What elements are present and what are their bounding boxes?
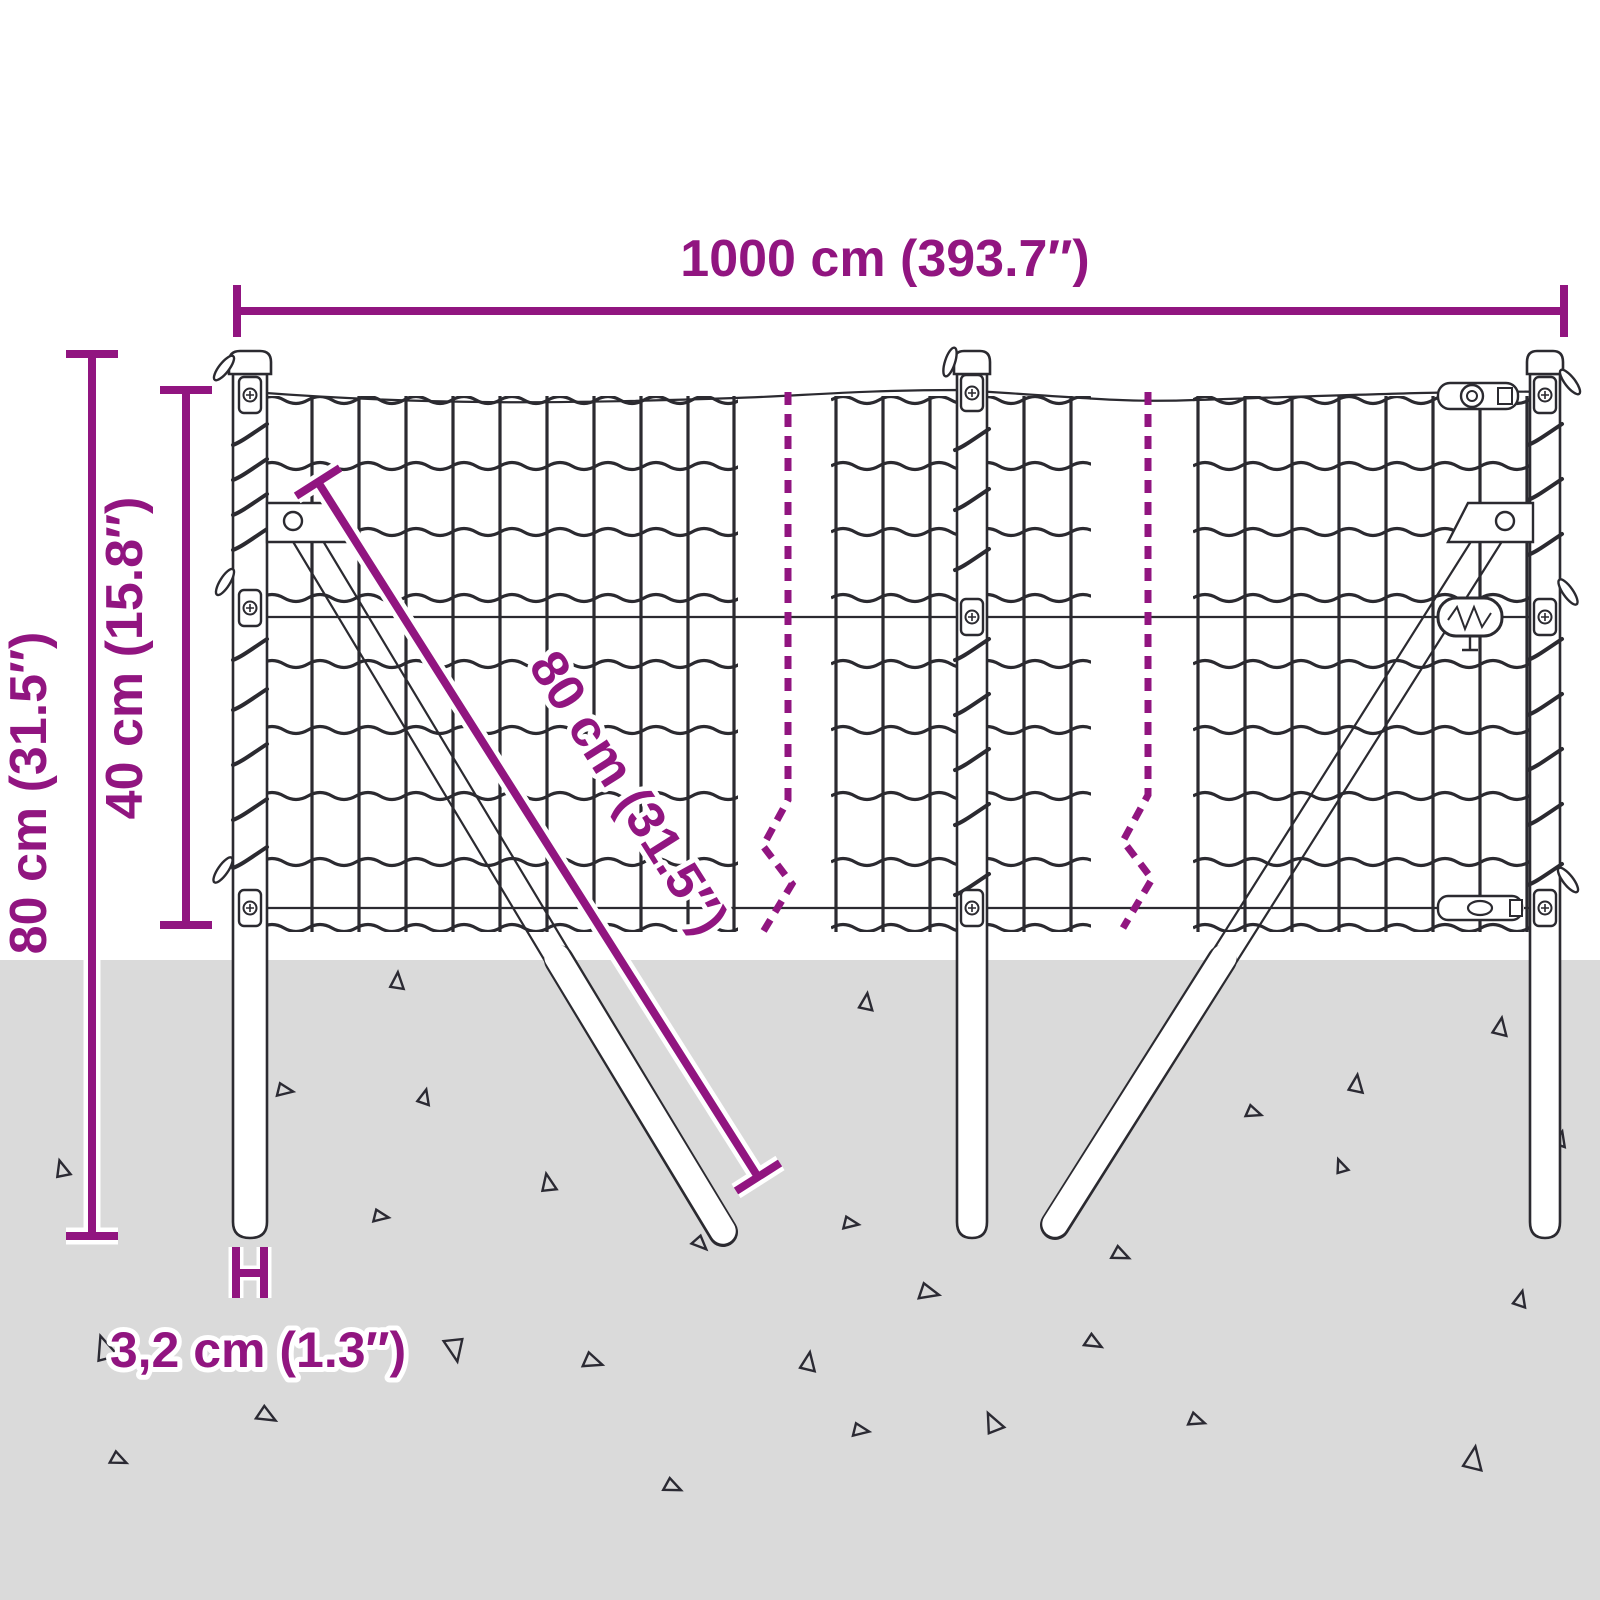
label-post-diameter: 3,2 cm (1.3″) xyxy=(110,1322,406,1378)
diagram-canvas: 1000 cm (393.7″) 80 cm (31.5″) 40 cm (15… xyxy=(0,0,1600,1600)
label-post-height: 80 cm (31.5″) xyxy=(0,632,58,955)
label-mesh-height: 40 cm (15.8″) xyxy=(96,497,154,820)
wire-tensioner-bottom xyxy=(1438,896,1522,920)
label-length: 1000 cm (393.7″) xyxy=(680,230,1089,288)
wire-tensioner-top xyxy=(1438,383,1518,409)
fence-dimension-diagram: 1000 cm (393.7″) 80 cm (31.5″) 40 cm (15… xyxy=(0,0,1600,1600)
